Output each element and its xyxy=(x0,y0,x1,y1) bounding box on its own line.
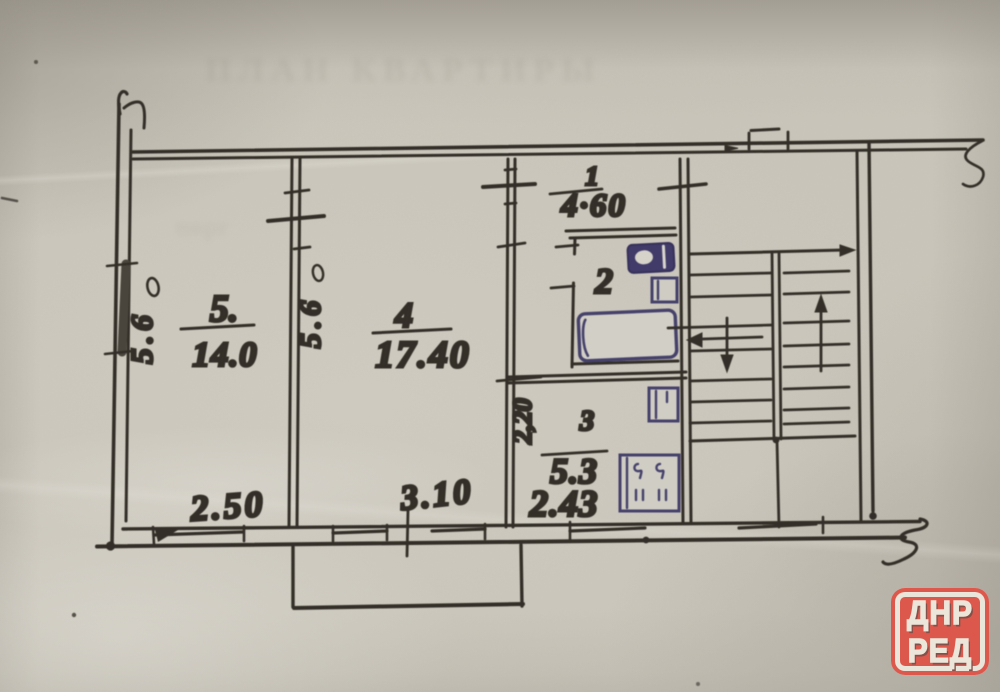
svg-text:5.6: 5.6 xyxy=(294,296,327,349)
svg-text:2.50: 2.50 xyxy=(188,483,267,528)
svg-text:5.6: 5.6 xyxy=(124,310,159,364)
svg-text:17.40: 17.40 xyxy=(375,334,471,376)
svg-text:1: 1 xyxy=(585,161,599,191)
svg-text:3.10: 3.10 xyxy=(397,471,475,518)
svg-text:2,20: 2,20 xyxy=(508,398,537,445)
svg-text:4·60: 4·60 xyxy=(560,188,627,224)
svg-text:5.: 5. xyxy=(210,288,239,330)
svg-text:2.43: 2.43 xyxy=(529,484,599,525)
svg-text:4: 4 xyxy=(394,295,413,335)
svg-text:2: 2 xyxy=(594,261,613,301)
svg-text:14.0: 14.0 xyxy=(192,335,257,374)
svg-text:3: 3 xyxy=(579,405,595,437)
